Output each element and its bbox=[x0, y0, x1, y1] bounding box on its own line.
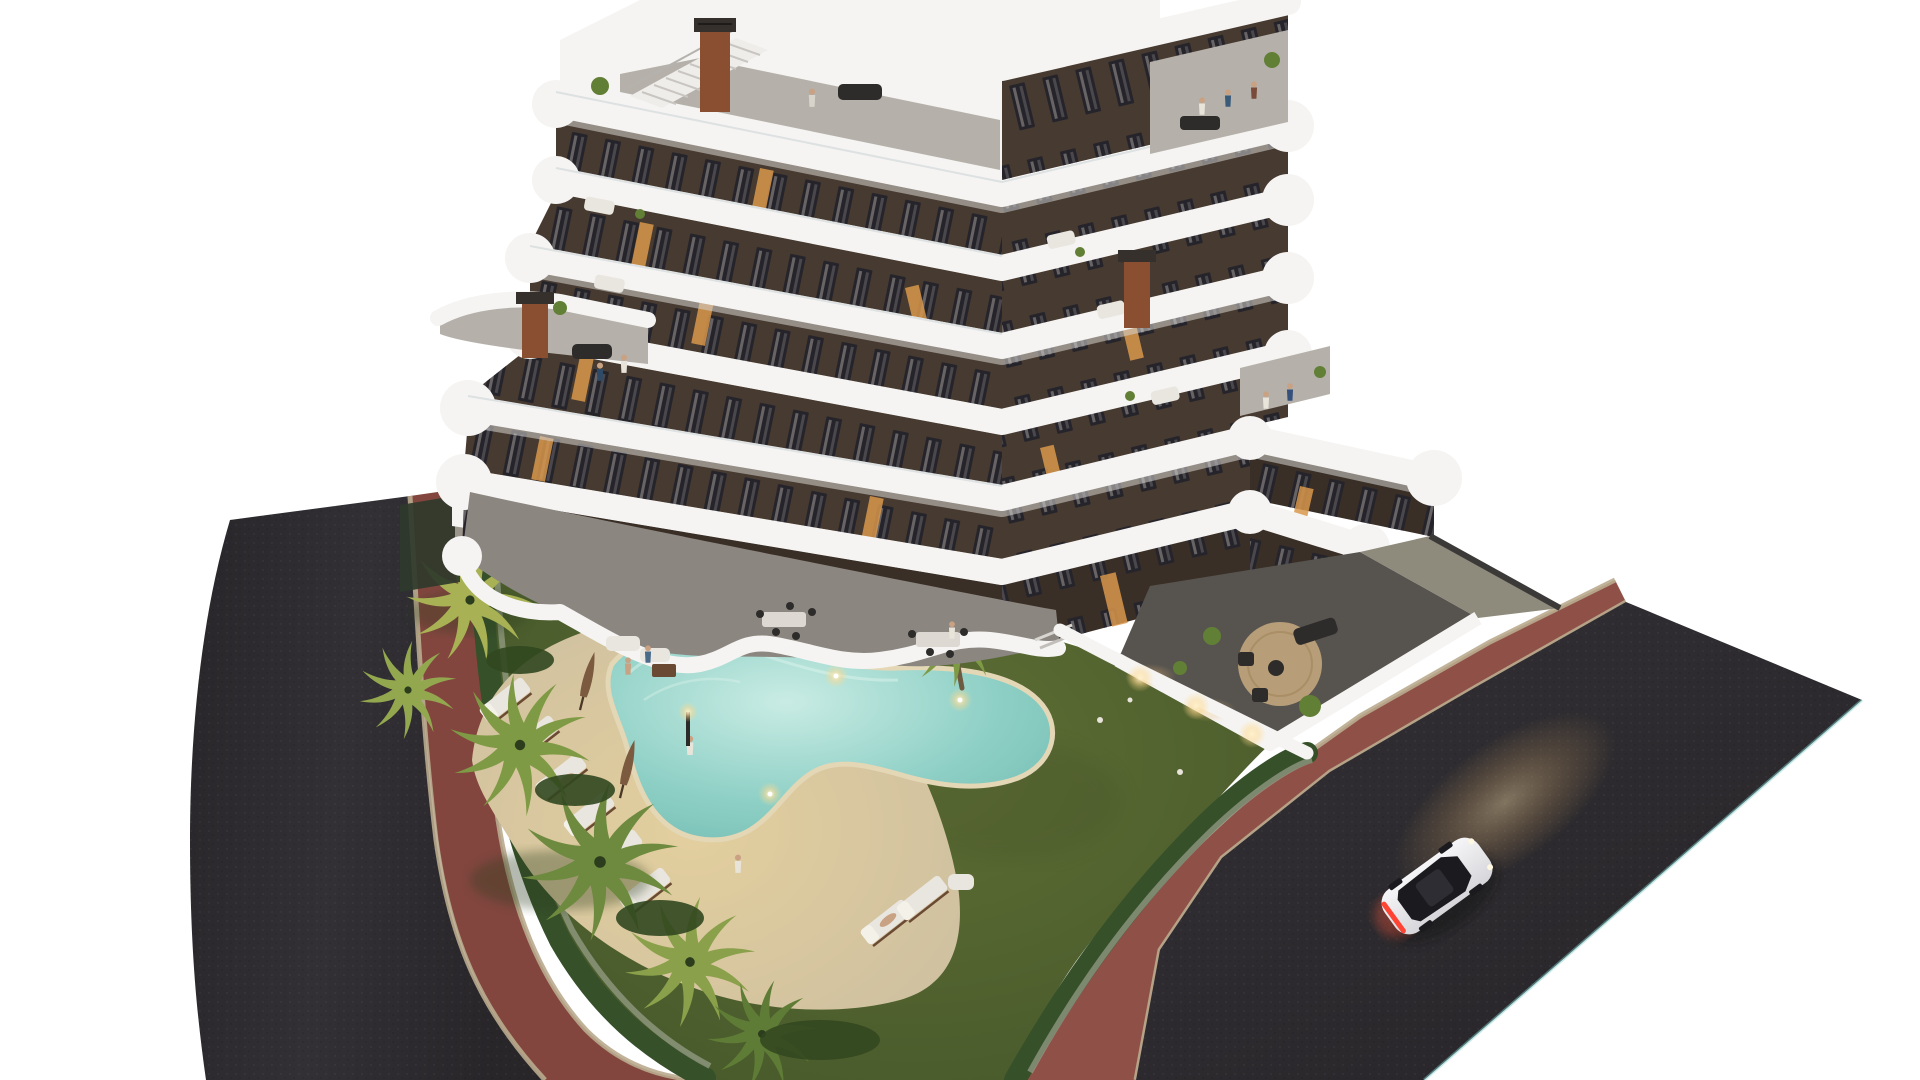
wall-light bbox=[1182, 692, 1210, 720]
render-canvas bbox=[0, 0, 1920, 1080]
resident-figure bbox=[949, 621, 955, 638]
pool-sofa bbox=[948, 874, 974, 890]
resident-figure bbox=[1199, 97, 1205, 114]
wall-light bbox=[1238, 720, 1266, 748]
patio-plant bbox=[1173, 661, 1187, 675]
patio-plant bbox=[1299, 695, 1321, 717]
patio-plant bbox=[1203, 627, 1221, 645]
resident-figure bbox=[597, 363, 603, 381]
resident-figure bbox=[735, 855, 741, 873]
chimney bbox=[694, 18, 736, 112]
wall-light bbox=[1126, 664, 1154, 692]
resident-figure bbox=[809, 89, 815, 107]
resident-figure bbox=[1263, 391, 1269, 408]
resident-figure bbox=[1251, 81, 1257, 98]
roof-sofa bbox=[838, 84, 882, 100]
resident-figure bbox=[621, 355, 627, 373]
roof-plant bbox=[591, 77, 609, 95]
aerial-render bbox=[0, 0, 1920, 1080]
terrace-sofa bbox=[572, 344, 612, 359]
resident-figure bbox=[625, 657, 631, 674]
resident-figure bbox=[1287, 383, 1293, 400]
resident-figure bbox=[1225, 89, 1231, 106]
resident-figure bbox=[645, 645, 651, 662]
